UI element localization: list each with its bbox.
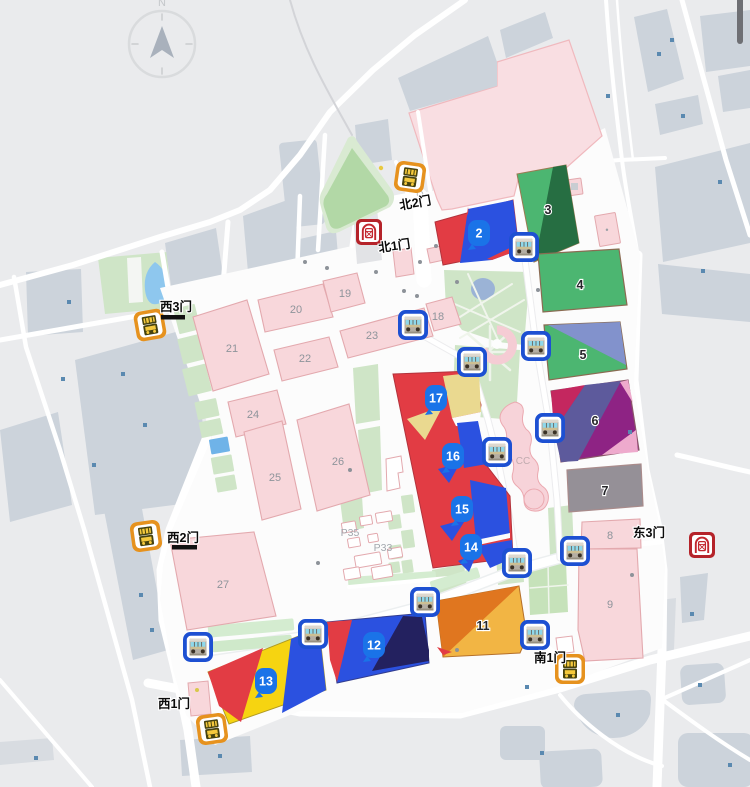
svg-text:3: 3 xyxy=(545,203,552,217)
svg-text:东3门: 东3门 xyxy=(633,525,665,540)
svg-text:25: 25 xyxy=(269,472,281,484)
svg-text:8: 8 xyxy=(607,530,613,542)
svg-text:4: 4 xyxy=(577,278,584,292)
svg-text:22: 22 xyxy=(299,353,311,365)
svg-text:P35: P35 xyxy=(341,527,360,539)
svg-text:西3门: 西3门 xyxy=(160,299,192,314)
svg-text:CC: CC xyxy=(516,456,530,467)
svg-text:•: • xyxy=(605,225,608,235)
svg-text:27: 27 xyxy=(217,579,229,591)
svg-text:西1门: 西1门 xyxy=(158,696,190,711)
svg-text:P33: P33 xyxy=(374,542,393,554)
svg-text:21: 21 xyxy=(226,343,238,355)
svg-text:14: 14 xyxy=(464,541,478,555)
svg-text:19: 19 xyxy=(339,288,351,300)
svg-text:7: 7 xyxy=(602,484,609,498)
svg-text:24: 24 xyxy=(247,409,259,421)
svg-text:23: 23 xyxy=(366,330,378,342)
svg-text:17: 17 xyxy=(429,392,443,406)
svg-text:16: 16 xyxy=(446,450,460,464)
svg-text:20: 20 xyxy=(290,304,302,316)
svg-text:西2门: 西2门 xyxy=(167,530,199,545)
svg-text:13: 13 xyxy=(259,675,273,689)
svg-text:15: 15 xyxy=(455,503,469,517)
svg-text:11: 11 xyxy=(476,619,489,633)
svg-text:南1门: 南1门 xyxy=(534,650,566,665)
svg-text:18: 18 xyxy=(432,311,444,323)
svg-text:26: 26 xyxy=(332,456,344,468)
svg-text:2: 2 xyxy=(476,227,483,241)
svg-text:N: N xyxy=(158,0,166,9)
svg-text:6: 6 xyxy=(592,414,599,428)
svg-text:12: 12 xyxy=(367,639,381,653)
svg-text:5: 5 xyxy=(580,348,587,362)
svg-text:9: 9 xyxy=(607,599,613,611)
